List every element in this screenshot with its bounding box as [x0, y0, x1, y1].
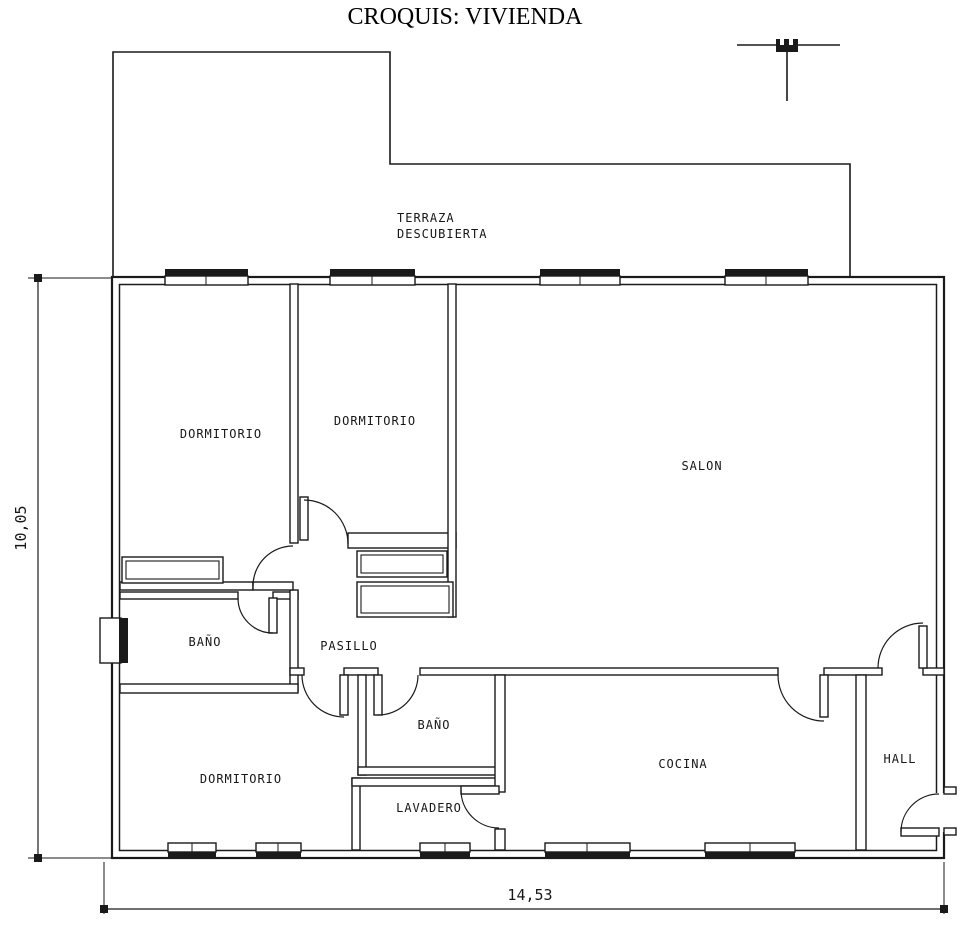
- room-label-lavadero: LAVADERO: [396, 801, 462, 815]
- terrace-outline: [113, 52, 850, 277]
- window-left-bano1: [100, 618, 128, 663]
- wall-dorm2-bottom: [348, 533, 456, 548]
- wall-bano1-right: [290, 590, 298, 691]
- reference-symbol: [737, 39, 840, 101]
- door-dormitorio1: [253, 546, 293, 590]
- wall-salon-left: [448, 284, 456, 617]
- room-label-pasillo: PASILLO: [320, 639, 378, 653]
- wall-main-c: [420, 668, 778, 675]
- door-salon-hall: [878, 623, 927, 668]
- window-bottom-5: [705, 843, 795, 859]
- room-label-dormitorio2: DORMITORIO: [334, 414, 416, 428]
- closet-pasillo-upper: [357, 551, 447, 577]
- wall-bano2-left: [358, 675, 366, 775]
- room-label-bano2: BAÑO: [418, 717, 451, 732]
- door-dormitorio2: [300, 497, 348, 544]
- wall-bano1-top-a: [120, 592, 238, 599]
- wall-main-e: [923, 668, 944, 675]
- room-label-hall: HALL: [884, 752, 917, 766]
- window-bottom-3: [420, 843, 470, 859]
- window-bottom-2: [256, 843, 301, 859]
- closet-pasillo-lower: [357, 582, 453, 617]
- dimension-vertical: 10,05: [12, 274, 112, 862]
- wall-main-b: [344, 668, 378, 675]
- hall-entrance-opening: [932, 793, 947, 832]
- door-dormitorio3: [302, 675, 348, 717]
- room-label-dormitorio1: DORMITORIO: [180, 427, 262, 441]
- hall-door-jamb-bottom: [944, 828, 956, 835]
- door-bano1: [238, 598, 277, 633]
- window-top-3: [540, 269, 620, 285]
- door-bano2: [374, 675, 418, 715]
- window-top-4: [725, 269, 808, 285]
- room-label-dormitorio3: DORMITORIO: [200, 772, 282, 786]
- floor-plan-canvas: CROQUIS: VIVIENDA TERRAZA DESCUBIERTA: [0, 0, 968, 928]
- dimension-horizontal: 14,53: [100, 862, 948, 914]
- window-top-1: [165, 269, 248, 285]
- window-bottom-4: [545, 843, 630, 859]
- wall-main-a: [290, 668, 304, 675]
- interior-walls: [120, 284, 956, 850]
- wall-bano2-bottom: [358, 767, 504, 775]
- door-lavadero: [461, 786, 499, 828]
- exterior-walls: [112, 277, 947, 858]
- doors: [238, 497, 939, 836]
- hall-door-jamb-top: [944, 787, 956, 794]
- room-label-salon: SALON: [681, 459, 722, 473]
- window-bottom-1: [168, 843, 216, 859]
- terrace-label-line2: DESCUBIERTA: [397, 227, 487, 241]
- wall-cocina-left-lower: [495, 829, 505, 850]
- wall-lavadero-left: [352, 778, 360, 850]
- room-label-cocina: COCINA: [658, 757, 707, 771]
- wall-cocina-hall: [856, 675, 866, 850]
- wall-bano1-bottom: [120, 684, 298, 693]
- window-top-2: [330, 269, 415, 285]
- wall-main-d: [824, 668, 882, 675]
- dimension-width-label: 14,53: [507, 886, 552, 904]
- door-cocina: [778, 675, 828, 721]
- wall-dorm1-dorm2: [290, 284, 298, 543]
- terrace-label-line1: TERRAZA: [397, 211, 455, 225]
- closet-dorm1: [122, 557, 223, 583]
- page-title: CROQUIS: VIVIENDA: [348, 4, 584, 30]
- wall-lavadero-top: [352, 778, 499, 786]
- room-label-bano1: BAÑO: [189, 634, 222, 649]
- dimension-height-label: 10,05: [12, 505, 30, 550]
- wall-cocina-left-upper: [495, 675, 505, 792]
